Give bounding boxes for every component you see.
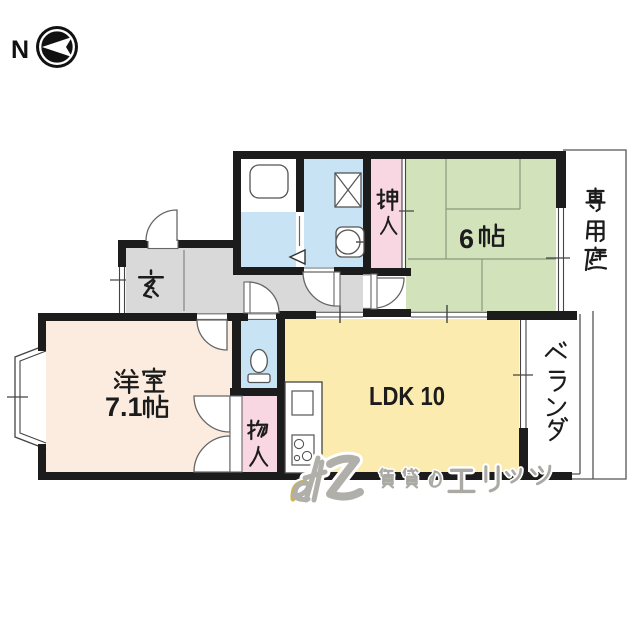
svg-text:N: N [11,36,29,64]
svg-text:6: 6 [459,224,474,254]
svg-text:7.1: 7.1 [105,392,143,422]
svg-text:LDK 10: LDK 10 [369,381,445,411]
